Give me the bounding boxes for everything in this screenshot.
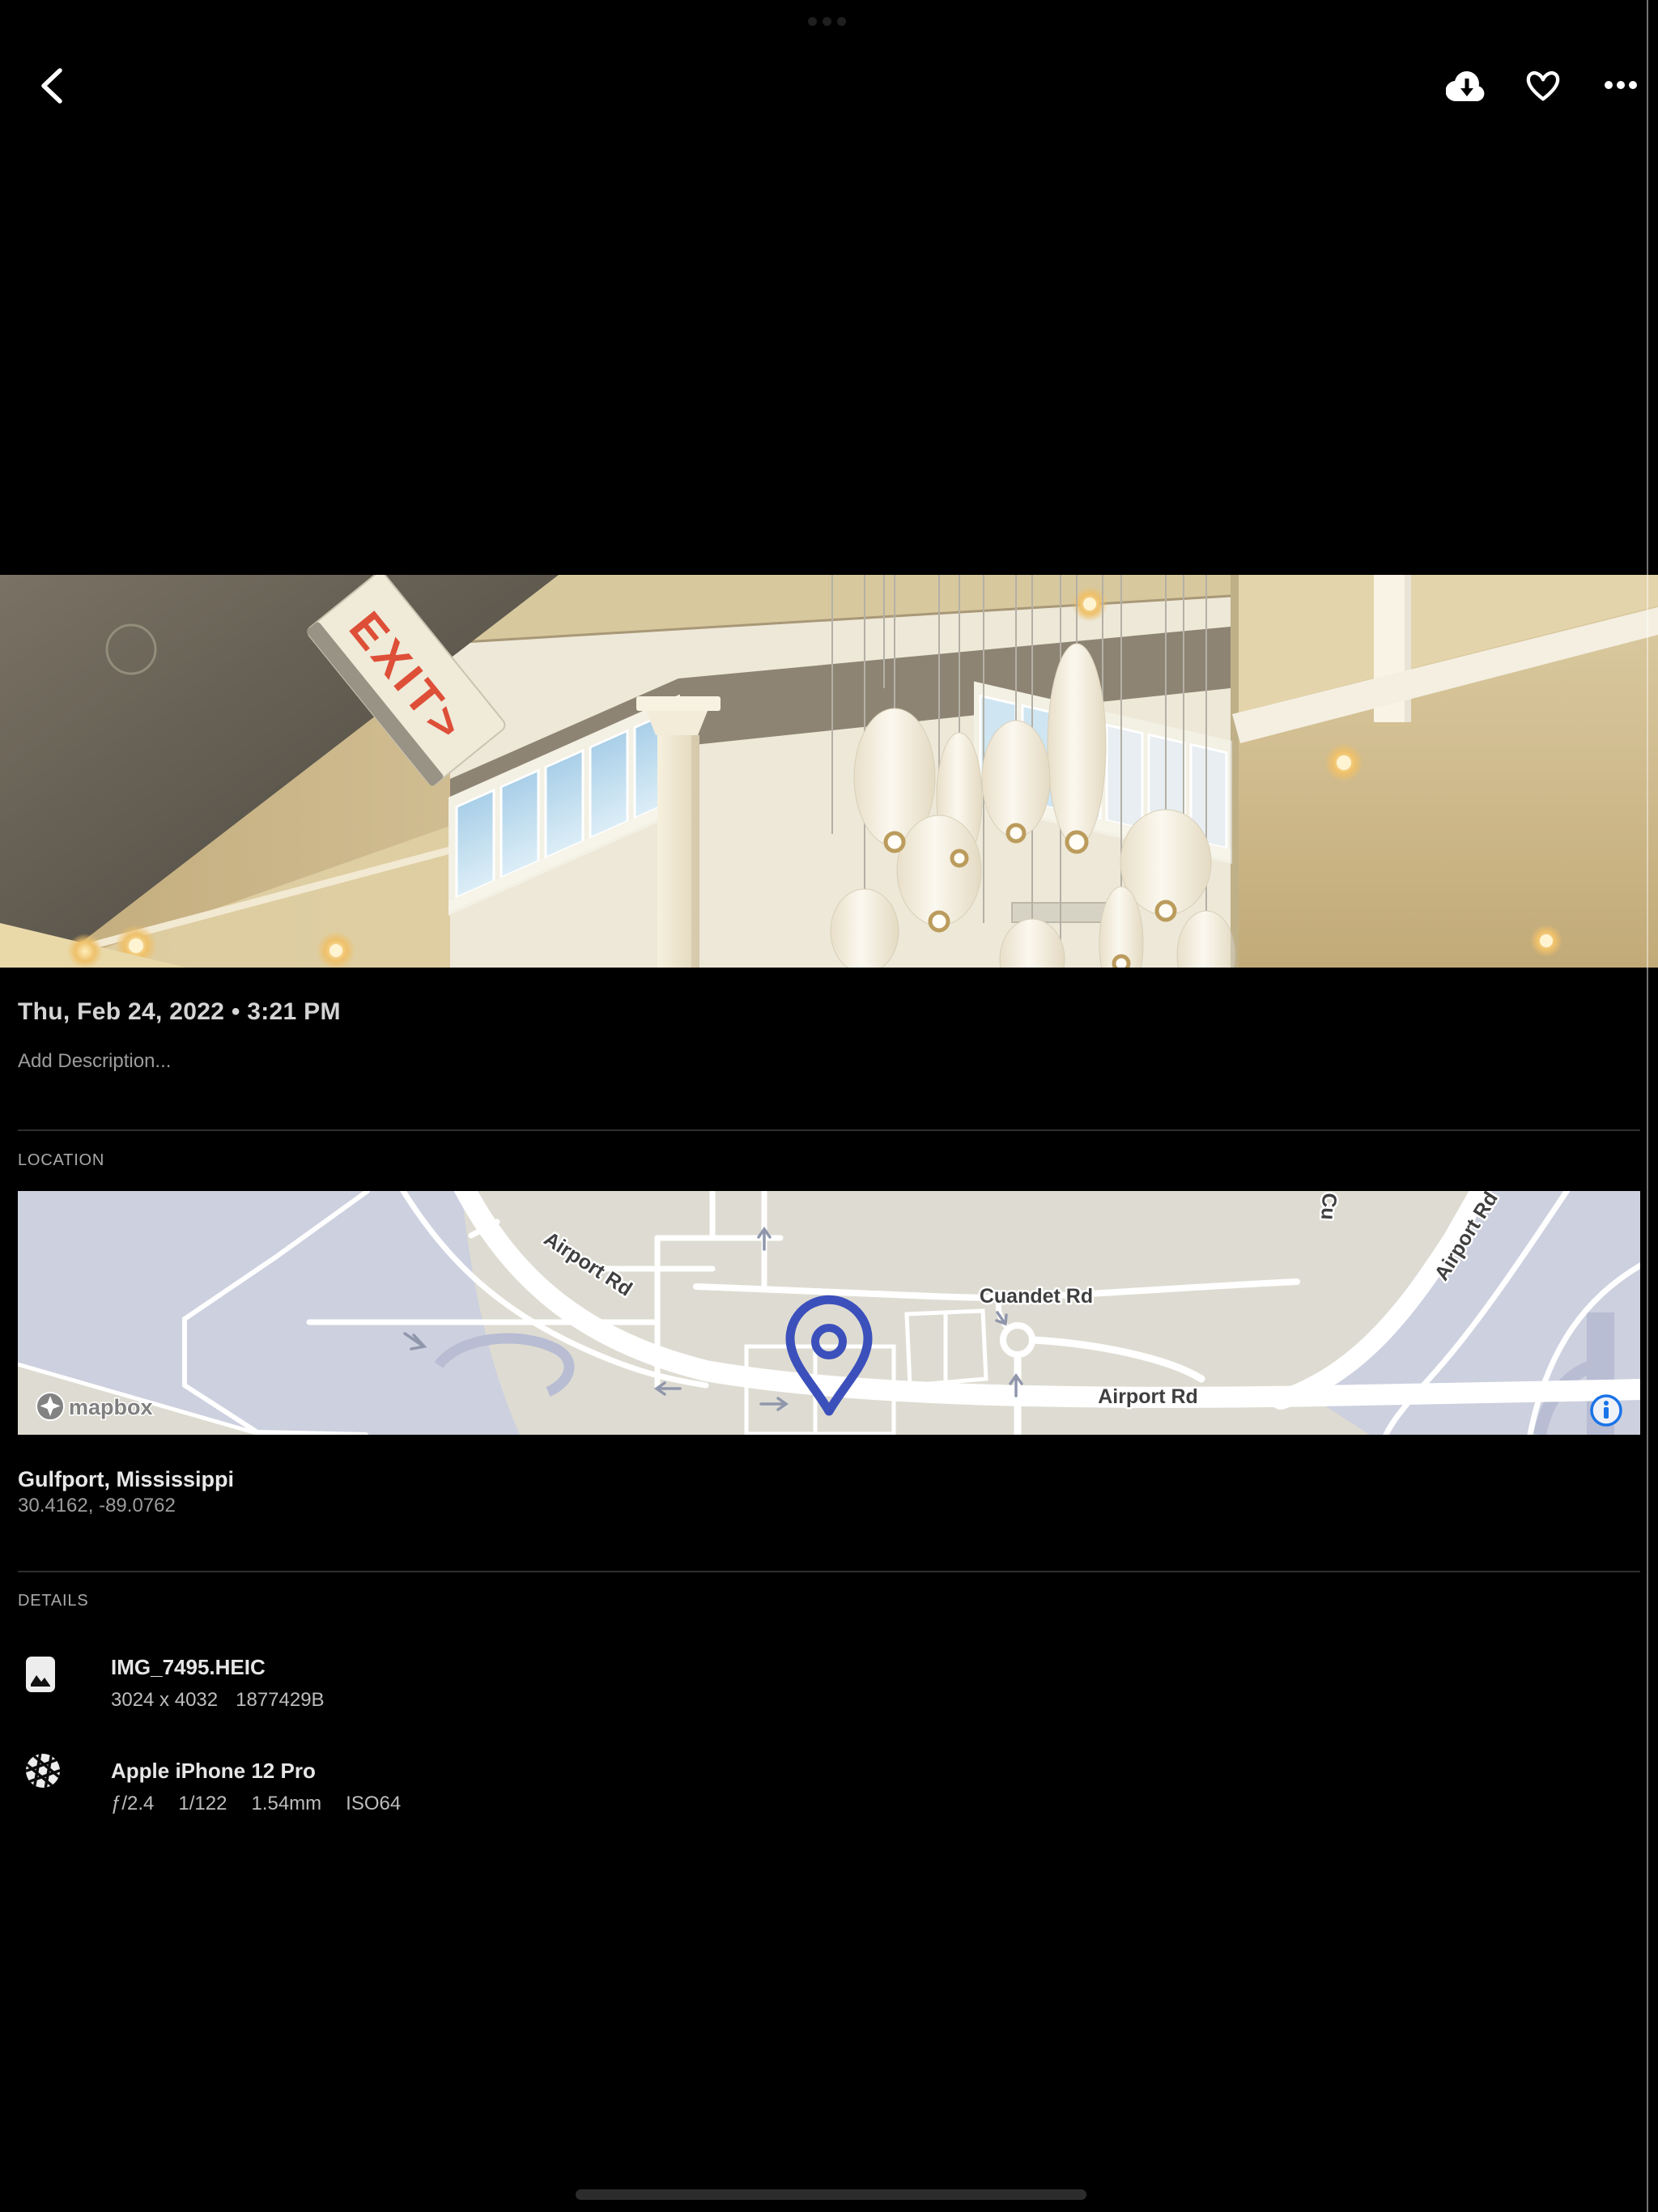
mapbox-wordmark: mapbox xyxy=(69,1395,153,1419)
location-place: Gulfport, Mississippi xyxy=(18,1467,234,1492)
file-dimensions: 3024 x 4032 xyxy=(111,1689,218,1712)
chevron-left-icon xyxy=(37,66,65,105)
photo-viewer[interactable]: EXIT> xyxy=(0,575,1658,968)
map-label-airport-rd-lower: Airport Rd xyxy=(1098,1385,1198,1408)
top-bar xyxy=(0,0,1658,130)
ellipsis-icon xyxy=(1603,79,1639,91)
file-name: IMG_7495.HEIC xyxy=(111,1655,266,1680)
heart-icon xyxy=(1525,69,1561,103)
download-button[interactable] xyxy=(1446,70,1488,104)
divider xyxy=(18,1129,1640,1131)
file-size: 1877429B xyxy=(236,1689,324,1712)
description-input[interactable]: Add Description... xyxy=(18,1050,171,1073)
scrollbar[interactable] xyxy=(1647,0,1648,2212)
photo-content: EXIT> xyxy=(0,575,1658,968)
camera-meta: ƒ/2.4 1/122 1.54mm ISO64 xyxy=(111,1793,401,1815)
divider xyxy=(18,1571,1640,1572)
camera-aperture: ƒ/2.4 xyxy=(111,1793,154,1815)
photo-detail-screen: EXIT> Thu, Feb 24, 2022 • 3:21 PM Add De… xyxy=(0,0,1658,2212)
camera-iso: ISO64 xyxy=(346,1793,401,1815)
mapbox-attribution[interactable]: mapbox xyxy=(36,1393,153,1420)
map-render: Airport Rd Cuandet Rd Airport Rd Airport… xyxy=(18,1191,1640,1435)
more-options-button[interactable] xyxy=(1603,79,1639,92)
location-section-title: LOCATION xyxy=(18,1151,104,1170)
map-label-cuandet-rd: Cuandet Rd xyxy=(980,1285,1093,1308)
back-button[interactable] xyxy=(37,66,65,105)
favorite-button[interactable] xyxy=(1525,69,1561,103)
location-map[interactable]: Airport Rd Cuandet Rd Airport Rd Airport… xyxy=(18,1191,1640,1435)
photo-date-time: Thu, Feb 24, 2022 • 3:21 PM xyxy=(18,998,341,1026)
map-label-road-fragment: Cu xyxy=(1316,1193,1341,1221)
location-coordinates: 30.4162, -89.0762 xyxy=(18,1495,176,1517)
file-meta: 3024 x 4032 1877429B xyxy=(111,1689,325,1712)
map-info-button[interactable] xyxy=(1592,1396,1621,1425)
image-file-icon xyxy=(24,1655,57,1698)
camera-shutter: 1/122 xyxy=(178,1793,227,1815)
camera-focal-length: 1.54mm xyxy=(251,1793,321,1815)
home-indicator[interactable] xyxy=(576,2189,1086,2200)
roundabout xyxy=(1003,1325,1032,1355)
cloud-download-icon xyxy=(1446,70,1488,104)
details-section-title: DETAILS xyxy=(18,1592,88,1610)
camera-iris-icon xyxy=(24,1752,62,1793)
camera-name: Apple iPhone 12 Pro xyxy=(111,1759,316,1784)
